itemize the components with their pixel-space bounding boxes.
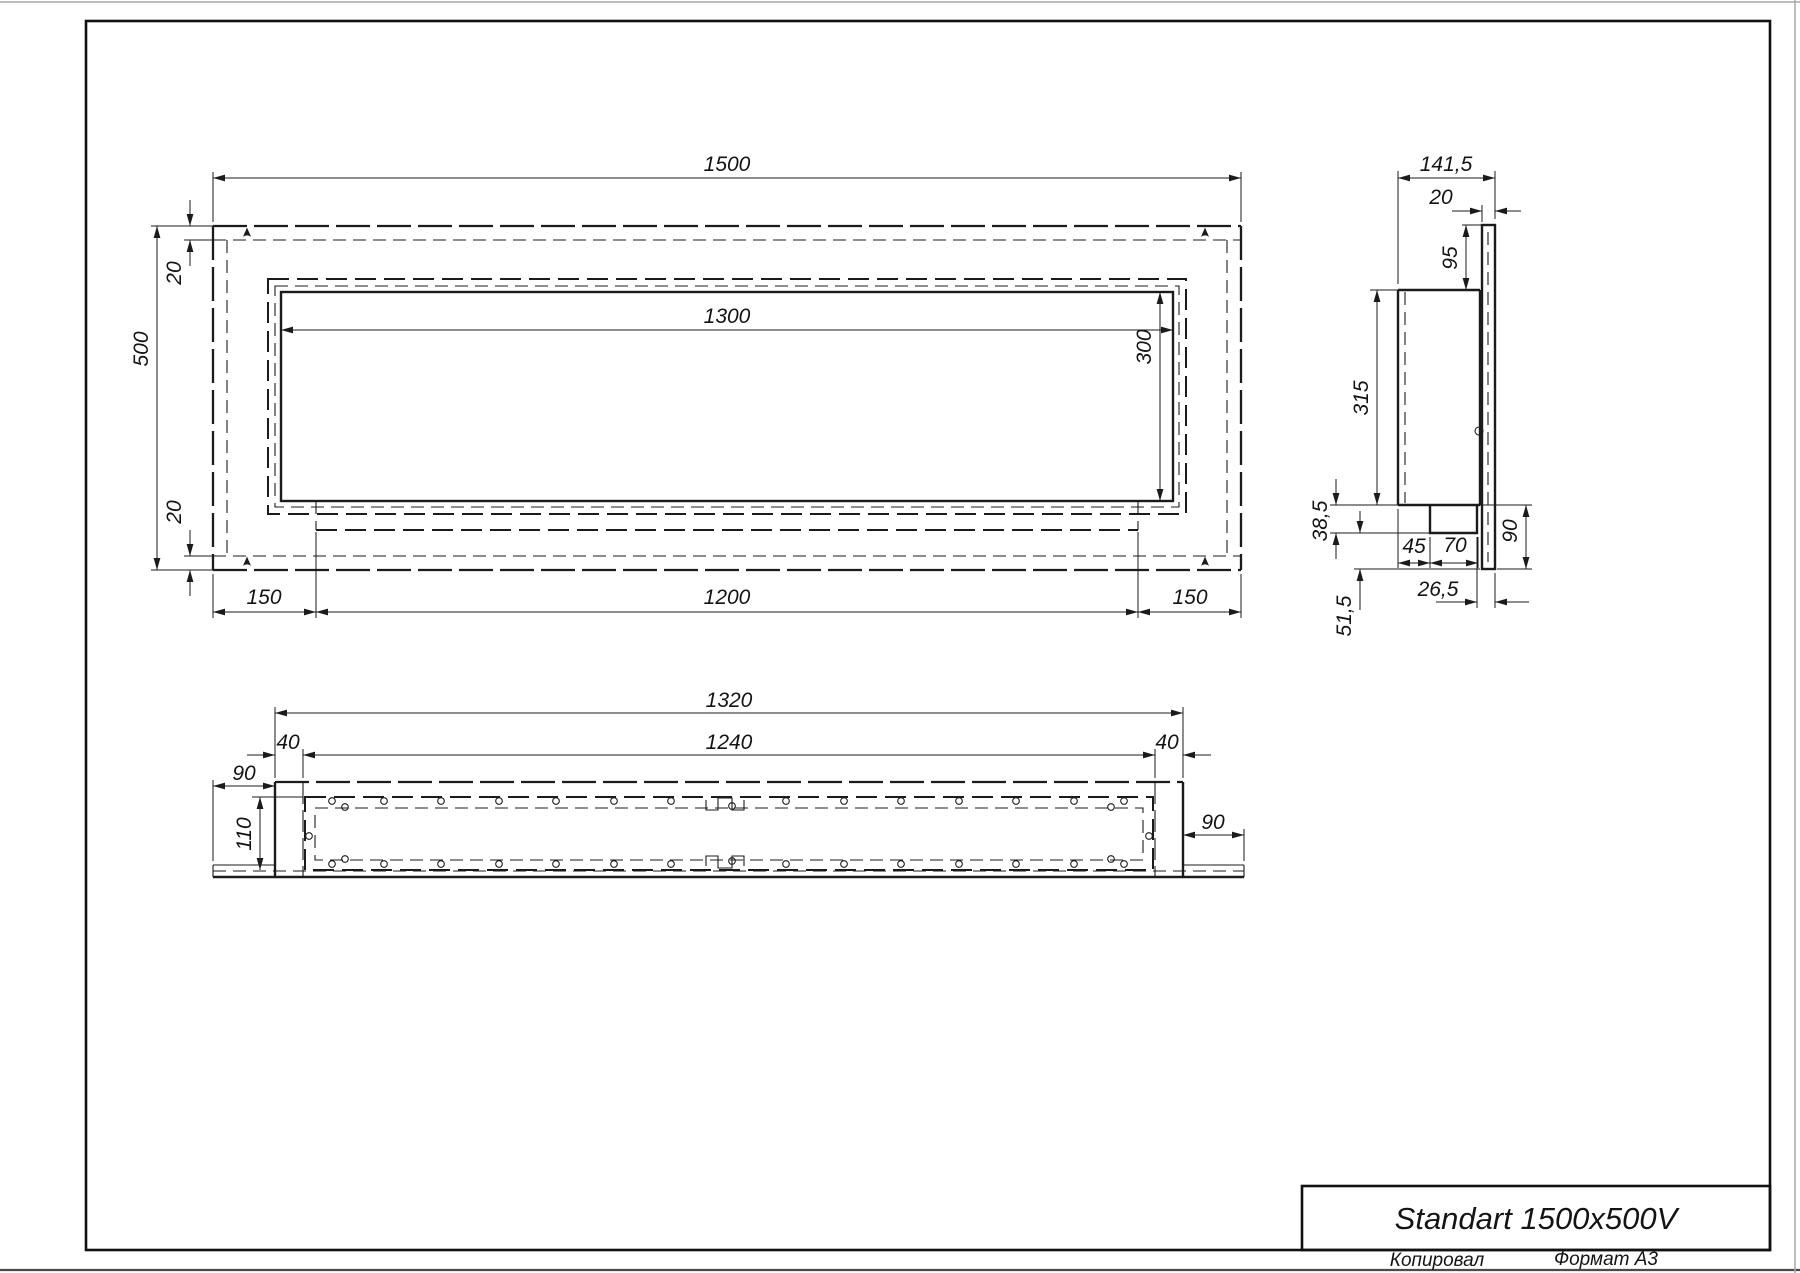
side-dimensions: 141,5 20 95 315 38,5 45 70 90 26,5 51,5 [1309, 153, 1532, 636]
bottom-view: 1320 1240 40 40 90 90 110 [213, 689, 1244, 877]
front-view: 1500 500 20 20 1300 300 150 1200 150 [130, 153, 1241, 618]
extension-lines [151, 172, 1241, 618]
burner-hole [438, 861, 445, 868]
burner-hole [496, 798, 503, 805]
burner-hole [1146, 833, 1153, 840]
drawing-sheet: Standart 1500x500V Копировал Формат А3 1… [0, 0, 1800, 1273]
burner-hole [898, 798, 905, 805]
burner-hole [438, 798, 445, 805]
burner-hole [841, 798, 848, 805]
flame-mark [1201, 228, 1209, 238]
burner-hole [1121, 861, 1128, 868]
burner-hole [1013, 798, 1020, 805]
burner-hole [841, 861, 848, 868]
burner-hole [496, 861, 503, 868]
side-body [1398, 290, 1480, 505]
dim-front-height: 500 [130, 331, 153, 366]
dim-side-tray-width: 70 [1443, 534, 1467, 557]
dim-front-base-width: 1200 [704, 586, 751, 609]
dim-side-bottom-offset: 51,5 [1333, 595, 1356, 636]
flame-mark [243, 557, 251, 567]
side-view: 141,5 20 95 315 38,5 45 70 90 26,5 51,5 [1309, 153, 1532, 636]
dim-front-width: 1500 [704, 153, 751, 176]
dim-bottom-body-width: 1320 [706, 689, 753, 712]
burner-hole [342, 804, 349, 811]
sheet-border [0, 0, 1800, 1273]
burner-hole [783, 861, 790, 868]
front-outer-outline [213, 226, 1241, 570]
dim-side-body-height: 315 [1350, 380, 1373, 415]
dim-front-offset-right: 150 [1172, 586, 1207, 609]
burner-hole [611, 798, 618, 805]
bottom-burner-inner [315, 808, 1143, 860]
dim-side-tray-height: 38,5 [1309, 500, 1332, 541]
burner-hole [329, 861, 336, 868]
dim-front-opening-width: 1300 [704, 305, 751, 328]
burner-hole [306, 833, 313, 840]
burner-hole [1121, 798, 1128, 805]
burner-hole [381, 861, 388, 868]
burner-hole [553, 798, 560, 805]
burner-hole [329, 798, 336, 805]
front-dimensions: 1500 500 20 20 1300 300 150 1200 150 [130, 153, 1241, 618]
flame-mark [1201, 557, 1209, 567]
drawing-canvas: Standart 1500x500V Копировал Формат А3 1… [0, 0, 1800, 1273]
dim-side-back-gap: 26,5 [1417, 578, 1459, 601]
dim-bottom-end-left: 90 [232, 762, 256, 785]
burner-hole [553, 861, 560, 868]
flame-mark [243, 228, 251, 238]
burner-hole [1071, 798, 1078, 805]
burner-hole [668, 861, 675, 868]
title-block: Standart 1500x500V Копировал Формат А3 [1390, 1201, 1681, 1271]
dim-bottom-burner-depth: 110 [233, 817, 256, 851]
dim-bottom-wall-left: 40 [276, 731, 300, 754]
format-label: Формат А3 [1554, 1249, 1658, 1270]
burner-hole [956, 861, 963, 868]
front-base-hidden-sides [316, 501, 1138, 530]
dim-bottom-burner-width: 1240 [706, 731, 753, 754]
drawing-frame [86, 21, 1770, 1250]
dim-side-tray-inset: 45 [1402, 535, 1426, 558]
burner-hole [898, 861, 905, 868]
burner-hole [342, 856, 349, 863]
burner-hole [1013, 861, 1020, 868]
drawing-title: Standart 1500x500V [1395, 1201, 1681, 1236]
dim-front-flange-bottom: 20 [163, 500, 186, 525]
burner-hole [783, 798, 790, 805]
dim-front-opening-height: 300 [1133, 329, 1156, 364]
burner-hole [1071, 861, 1078, 868]
dim-front-offset-left: 150 [246, 586, 281, 609]
front-flange-hidden-lines [213, 240, 1241, 556]
burner-hole [1108, 804, 1115, 811]
dim-front-flange-top: 20 [163, 261, 186, 286]
dim-bottom-end-right: 90 [1201, 811, 1225, 834]
dim-side-bottom-flange: 90 [1499, 519, 1522, 543]
copied-by-label: Копировал [1390, 1250, 1485, 1271]
burner-hole [611, 861, 618, 868]
burner-hole [381, 798, 388, 805]
dim-side-top-offset: 95 [1439, 246, 1462, 270]
burner-hole [956, 798, 963, 805]
dim-side-depth: 141,5 [1420, 153, 1473, 176]
burner-hole [1108, 856, 1115, 863]
dim-bottom-wall-right: 40 [1155, 731, 1179, 754]
burner-hole [668, 798, 675, 805]
dim-side-panel: 20 [1428, 186, 1453, 209]
side-tray [1430, 505, 1477, 533]
bottom-dimensions: 1320 1240 40 40 90 90 110 [213, 689, 1244, 870]
